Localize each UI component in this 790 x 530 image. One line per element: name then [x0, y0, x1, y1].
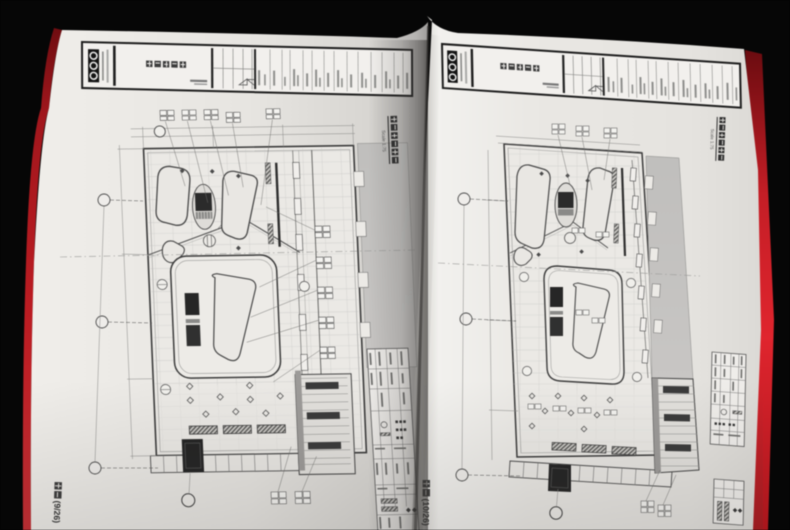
svg-text:Scale 1:75: Scale 1:75	[709, 129, 715, 150]
